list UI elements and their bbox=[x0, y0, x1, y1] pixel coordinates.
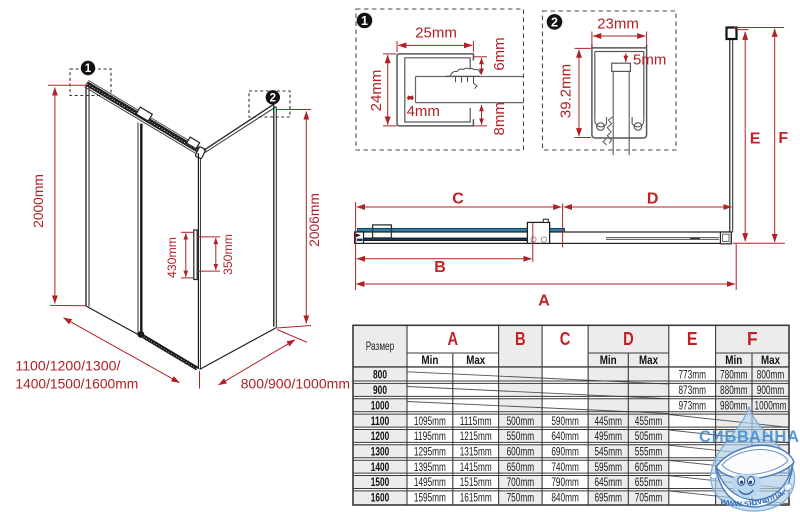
svg-text:1595mm: 1595mm bbox=[414, 493, 446, 505]
svg-text:1000mm: 1000mm bbox=[755, 400, 787, 412]
svg-text:5mm: 5mm bbox=[633, 52, 666, 69]
svg-text:590mm: 590mm bbox=[551, 416, 579, 428]
svg-text:Max: Max bbox=[761, 353, 780, 367]
svg-text:1295mm: 1295mm bbox=[414, 447, 446, 459]
svg-text:1495mm: 1495mm bbox=[414, 477, 446, 489]
svg-text:545mm: 545mm bbox=[594, 447, 622, 459]
svg-text:2: 2 bbox=[551, 15, 558, 29]
svg-text:873mm: 873mm bbox=[678, 385, 706, 397]
svg-text:790mm: 790mm bbox=[551, 477, 579, 489]
svg-text:1: 1 bbox=[85, 63, 92, 75]
svg-text:980mm: 980mm bbox=[720, 400, 748, 412]
svg-text:555mm: 555mm bbox=[635, 447, 663, 459]
svg-text:C: C bbox=[560, 329, 571, 349]
svg-text:1195mm: 1195mm bbox=[414, 431, 446, 443]
svg-text:8mm: 8mm bbox=[491, 102, 508, 135]
svg-text:1300: 1300 bbox=[371, 447, 390, 459]
svg-text:Min: Min bbox=[600, 353, 617, 367]
svg-text:700mm: 700mm bbox=[507, 477, 535, 489]
svg-text:500mm: 500mm bbox=[507, 416, 535, 428]
svg-text:1: 1 bbox=[361, 14, 368, 28]
svg-text:600mm: 600mm bbox=[507, 447, 535, 459]
svg-text:Max: Max bbox=[639, 353, 658, 367]
svg-text:A: A bbox=[448, 329, 459, 349]
svg-text:690mm: 690mm bbox=[551, 447, 579, 459]
svg-text:1115mm: 1115mm bbox=[460, 416, 492, 428]
svg-text:800mm: 800mm bbox=[757, 370, 785, 382]
svg-text:6mm: 6mm bbox=[491, 37, 508, 70]
svg-text:Max: Max bbox=[466, 353, 485, 367]
svg-text:24mm: 24mm bbox=[368, 70, 385, 112]
svg-text:780mm: 780mm bbox=[720, 370, 748, 382]
svg-text:39.2mm: 39.2mm bbox=[557, 64, 574, 118]
svg-text:1515mm: 1515mm bbox=[460, 477, 492, 489]
svg-text:973mm: 973mm bbox=[678, 400, 706, 412]
svg-text:1095mm: 1095mm bbox=[414, 416, 446, 428]
svg-text:1100/1200/1300/: 1100/1200/1300/ bbox=[15, 358, 120, 373]
svg-text:F: F bbox=[778, 130, 788, 147]
svg-text:900mm: 900mm bbox=[757, 385, 785, 397]
svg-text:750mm: 750mm bbox=[507, 493, 535, 505]
svg-text:650mm: 650mm bbox=[507, 462, 535, 474]
svg-text:1000: 1000 bbox=[371, 400, 390, 412]
svg-text:1400: 1400 bbox=[371, 462, 390, 474]
svg-text:1600: 1600 bbox=[371, 493, 390, 505]
svg-text:E: E bbox=[687, 329, 698, 349]
svg-text:23mm: 23mm bbox=[597, 16, 639, 33]
svg-text:773mm: 773mm bbox=[678, 370, 706, 382]
svg-text:F: F bbox=[747, 329, 758, 349]
svg-text:B: B bbox=[515, 329, 526, 349]
svg-text:840mm: 840mm bbox=[551, 493, 579, 505]
svg-text:900: 900 bbox=[373, 385, 387, 397]
svg-text:550mm: 550mm bbox=[507, 431, 535, 443]
svg-text:1100: 1100 bbox=[371, 416, 390, 428]
svg-text:430mm: 430mm bbox=[165, 237, 179, 278]
svg-text:25mm: 25mm bbox=[415, 25, 457, 42]
svg-text:605mm: 605mm bbox=[635, 462, 663, 474]
svg-text:740mm: 740mm bbox=[551, 462, 579, 474]
svg-text:Min: Min bbox=[421, 353, 438, 367]
svg-text:1615mm: 1615mm bbox=[460, 493, 492, 505]
svg-text:A: A bbox=[538, 293, 550, 310]
svg-text:445mm: 445mm bbox=[594, 416, 622, 428]
svg-text:880mm: 880mm bbox=[720, 385, 748, 397]
svg-text:455mm: 455mm bbox=[635, 416, 663, 428]
svg-text:1500: 1500 bbox=[371, 477, 390, 489]
svg-text:1415mm: 1415mm bbox=[460, 462, 492, 474]
svg-text:1400/1500/1600mm: 1400/1500/1600mm bbox=[15, 377, 138, 392]
svg-text:B: B bbox=[434, 259, 446, 276]
svg-text:2: 2 bbox=[270, 93, 276, 105]
svg-text:640mm: 640mm bbox=[551, 431, 579, 443]
svg-text:695mm: 695mm bbox=[594, 493, 622, 505]
svg-text:505mm: 505mm bbox=[635, 431, 663, 443]
svg-text:1395mm: 1395mm bbox=[414, 462, 446, 474]
svg-text:705mm: 705mm bbox=[635, 493, 663, 505]
svg-text:1315mm: 1315mm bbox=[460, 447, 492, 459]
svg-text:350mm: 350mm bbox=[221, 234, 235, 275]
svg-text:D: D bbox=[623, 329, 634, 349]
svg-text:800: 800 bbox=[373, 370, 387, 382]
svg-text:4mm: 4mm bbox=[407, 103, 440, 120]
svg-text:Размер: Размер bbox=[366, 341, 395, 353]
svg-text:655mm: 655mm bbox=[635, 477, 663, 489]
svg-text:1215mm: 1215mm bbox=[460, 431, 492, 443]
svg-text:800/900/1000mm: 800/900/1000mm bbox=[241, 377, 351, 392]
svg-text:645mm: 645mm bbox=[594, 477, 622, 489]
svg-text:595mm: 595mm bbox=[594, 462, 622, 474]
svg-text:C: C bbox=[452, 191, 464, 208]
svg-text:2006mm: 2006mm bbox=[307, 193, 322, 247]
svg-text:2000mm: 2000mm bbox=[31, 174, 46, 228]
svg-text:1200: 1200 bbox=[371, 431, 390, 443]
svg-text:D: D bbox=[647, 191, 659, 208]
svg-text:Min: Min bbox=[725, 353, 742, 367]
svg-text:495mm: 495mm bbox=[594, 431, 622, 443]
svg-text:СИБВАННА: СИБВАННА bbox=[699, 428, 799, 446]
svg-text:E: E bbox=[750, 131, 761, 148]
